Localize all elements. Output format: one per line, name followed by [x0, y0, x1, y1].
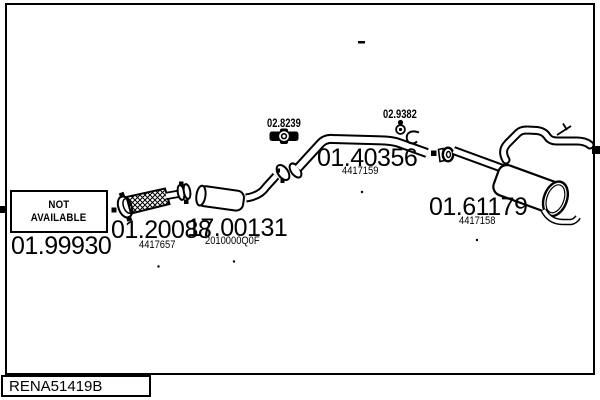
diagram-frame-border: [5, 3, 595, 375]
drawing-code: RENA51419B: [3, 379, 102, 394]
drawing-code-box: RENA51419B: [1, 375, 151, 397]
oe-ref-centre-pipe: 4417159: [342, 166, 378, 177]
oe-ref-rear-silencer: 4417158: [459, 216, 495, 227]
oe-ref-flex-pipe: 4417657: [139, 240, 175, 251]
not-available-line1: NOT: [49, 199, 70, 212]
part-label-rubber-mounting: 02.9382: [383, 108, 417, 120]
part-label-clamp: 02.8239: [267, 117, 301, 129]
part-label-front-pipe: 01.99930: [11, 234, 111, 259]
not-available-box: NOT AVAILABLE: [10, 190, 108, 233]
not-available-line2: AVAILABLE: [31, 212, 87, 225]
oe-ref-catalytic-converter: 2010000Q0F: [205, 236, 260, 247]
exhaust-system-diagram-page: NOT AVAILABLE 01.99930 01.20088 4417657 …: [0, 0, 600, 400]
